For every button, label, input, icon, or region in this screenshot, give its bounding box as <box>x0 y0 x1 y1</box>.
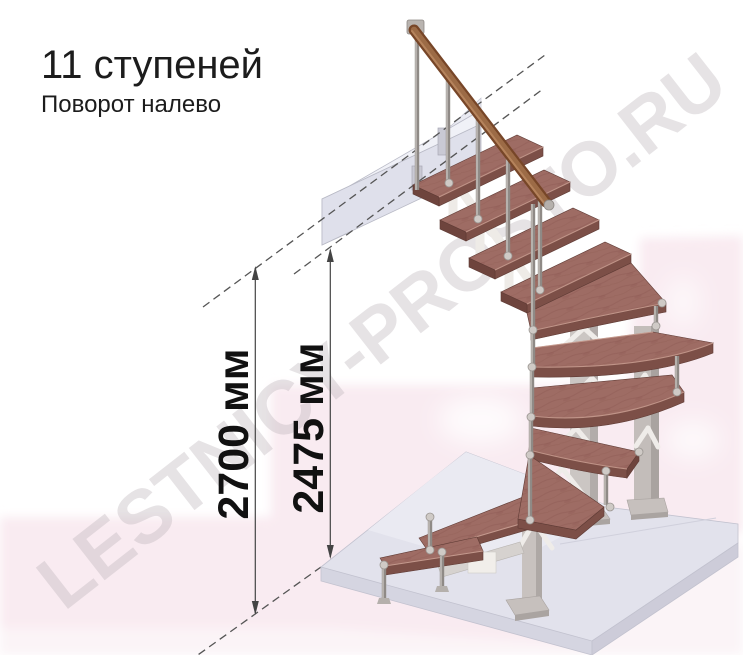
svg-text:2700 мм: 2700 мм <box>210 348 258 519</box>
svg-text:11 ступеней: 11 ступеней <box>41 43 263 87</box>
svg-text:2475 мм: 2475 мм <box>285 342 333 513</box>
svg-text:Поворот налево: Поворот налево <box>41 91 221 118</box>
